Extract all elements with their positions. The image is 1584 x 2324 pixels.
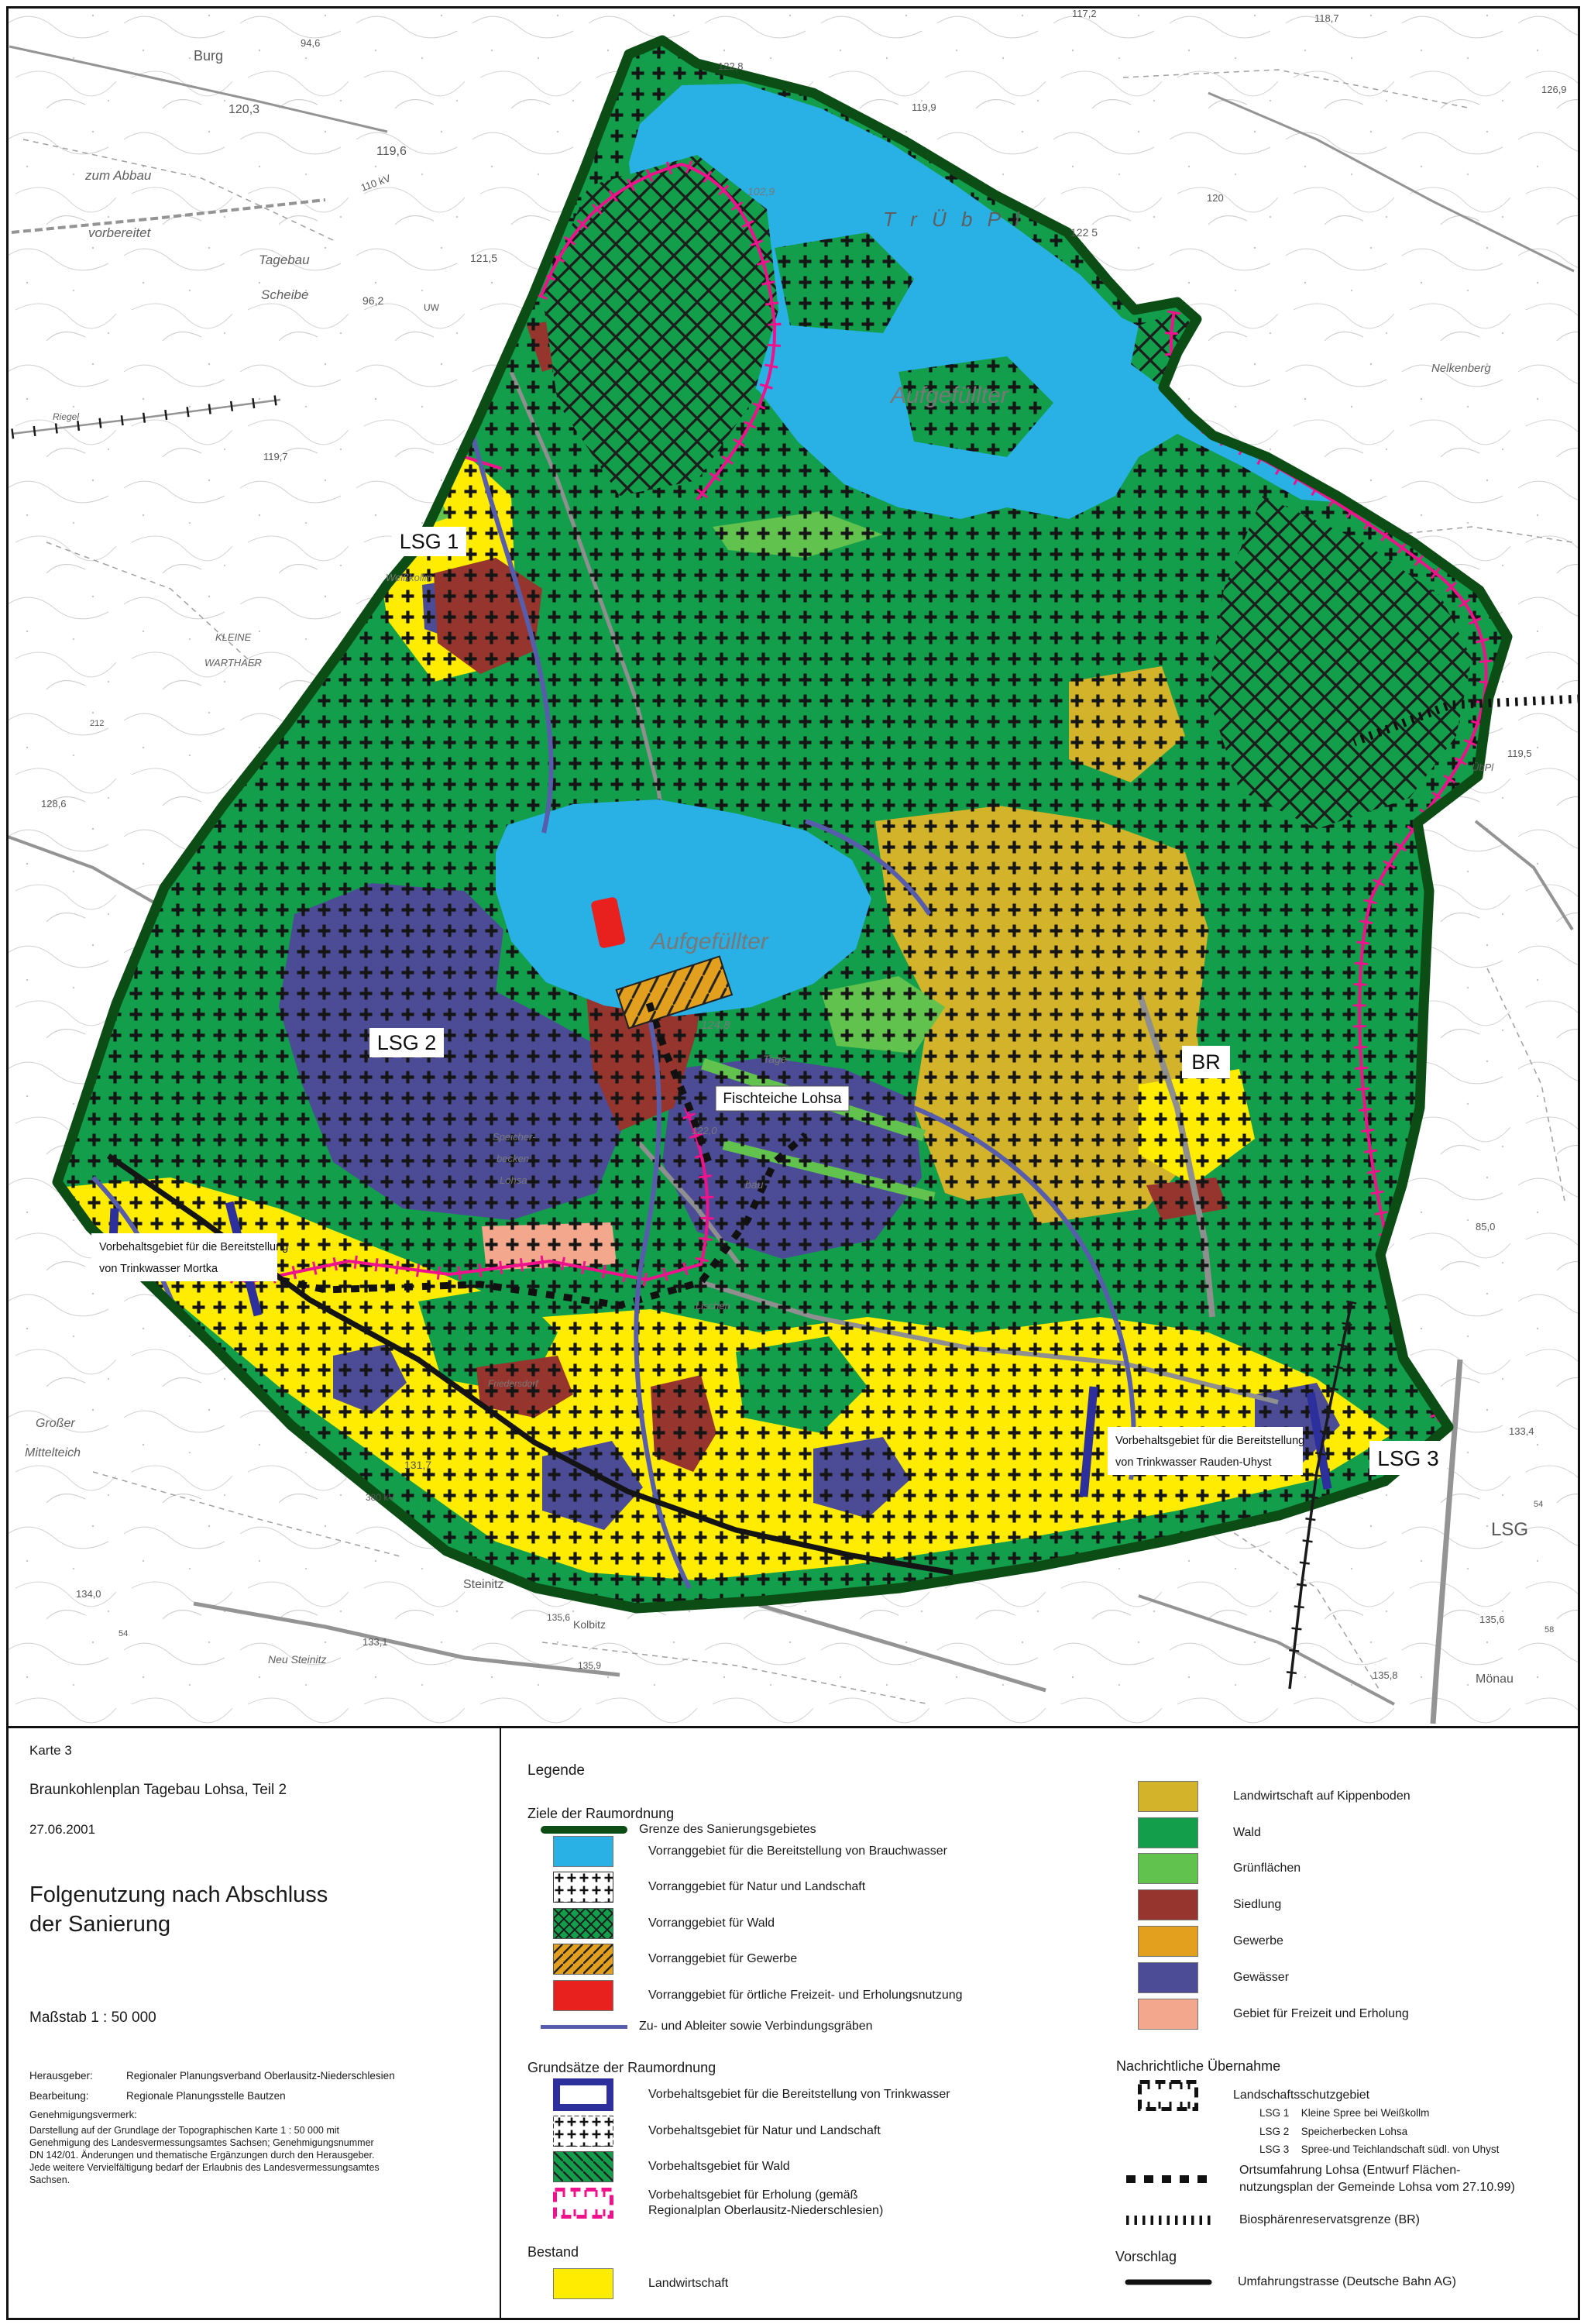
page-border bbox=[6, 6, 1580, 2320]
page: { "title_block": { "karte": "Karte 3", "… bbox=[0, 0, 1584, 2324]
